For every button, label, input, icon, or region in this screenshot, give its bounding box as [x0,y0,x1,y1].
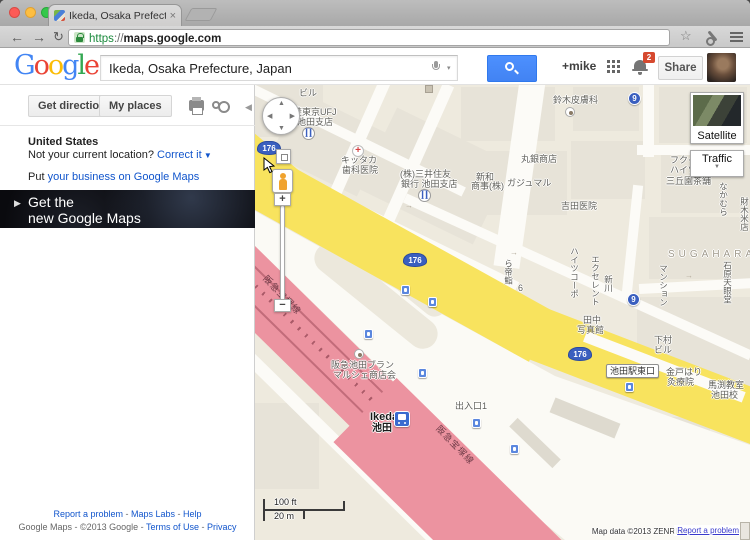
google-logo: Google [14,50,98,81]
map-report-problem-link[interactable]: Report a problem [674,525,742,536]
bus-marker-icon [472,418,481,428]
map-label: 三丘園茶舗 [666,176,711,186]
divider [0,125,255,126]
map-label: マンション [659,264,668,307]
map-label: → [685,271,693,280]
pan-up-icon[interactable]: ▲ [278,100,285,107]
map-label: 石原天眼堂 [723,261,732,304]
location-question: Not your current location? Correct it ▼ [28,149,212,161]
promo-line2: new Google Maps [28,210,141,226]
tab-strip: Ikeda, Osaka Prefecture, Ja × [0,0,750,26]
footer-separator: - [123,509,131,519]
share-button[interactable]: Share [658,56,703,80]
google-header: Google ▾ +mike 2 Share [0,48,750,85]
satellite-label: Satellite [691,130,743,142]
footer-separator: - [175,509,183,519]
train-marker-icon [394,411,410,427]
map-label: ビル [299,88,317,98]
privacy-link[interactable]: Privacy [207,522,237,532]
map-label: ハイツコーポ [570,247,579,298]
map-label: マルシェ商店会 [333,370,396,380]
back-button[interactable]: ← [10,27,24,47]
report-problem-link[interactable]: Report a problem [53,509,123,519]
bus-marker-icon [510,444,519,454]
google-logo-letter: g [62,50,77,81]
bus-marker-icon [418,368,427,378]
zoom-in-button[interactable]: + [274,193,291,206]
traffic-layer-button[interactable]: Traffic ▼ [690,150,744,177]
map-label: なかむら [719,182,728,216]
url-scheme: https [89,33,114,45]
reload-button[interactable]: ↻ [53,27,64,47]
menu-icon[interactable] [730,32,743,42]
map-scale-bar: 100 ft 20 m [263,499,353,525]
tab-close-icon[interactable]: × [170,11,176,21]
scale-meters-label: 20 m [274,511,294,521]
return-to-last-position-button[interactable] [276,149,291,164]
map-canvas[interactable]: ビル菱東京UFJ池田支店キッタカ歯科医院(株)三井住友銀行 池田支店丸銀商店新和… [255,85,750,540]
map-label: 下村 [654,335,672,345]
map-label: 馬渕教室 [708,380,744,390]
window-close-button[interactable] [9,7,20,18]
business-link[interactable]: your business on Google Maps [48,171,200,183]
sidebar-footer: Report a problem - Maps Labs - Help Goog… [0,506,255,532]
tab-title: Ikeda, Osaka Prefecture, Ja [69,10,166,22]
footer-brand: Google Maps [18,522,72,532]
promo-arrow-icon: ▶ [14,198,21,209]
correct-it-caret-icon[interactable]: ▼ [202,151,212,160]
mic-dropdown-caret-icon[interactable]: ▾ [447,64,451,72]
google-logo-letter: G [14,50,34,81]
notification-badge: 2 [643,52,655,63]
promo-line1: Get the [28,194,74,210]
map-road [639,278,750,294]
sidebar-collapse-arrow-icon[interactable]: ◀ [242,96,255,118]
scale-feet-label: 100 ft [274,497,297,507]
circle9-marker-icon: 9 [627,293,640,306]
browser-tab[interactable]: Ikeda, Osaka Prefecture, Ja × [48,4,182,26]
map-label: 写真館 [577,325,604,335]
pan-control[interactable]: ▲ ▼ ◀ ▶ [262,97,300,135]
satellite-layer-button[interactable]: Satellite [690,92,744,144]
google-logo-letter: o [34,50,48,81]
sidebar: Get directions My places ◀ United States… [0,85,255,540]
map-label: 阪急池田ブラン [331,360,394,370]
zoom-out-button[interactable]: − [274,299,291,312]
address-bar[interactable]: https://maps.google.com [68,29,670,46]
search-button[interactable] [487,55,537,82]
footer-separator: - [199,522,207,532]
shield-marker-icon: 176 [403,253,427,267]
map-label: 田中 [583,315,601,325]
map-label: 鈴木皮膚科 [553,95,598,105]
bus-marker-icon [428,297,437,307]
map-label: 金戸はり [666,367,702,377]
map-label: ガジュマル [507,178,551,188]
location-question-text: Not your current location? [28,149,157,161]
pan-left-icon[interactable]: ◀ [267,112,272,120]
map-label: 6 [518,283,523,293]
hospital-marker-icon [352,145,364,157]
bookmark-star-icon[interactable]: ☆ [680,28,692,44]
map-label: 池田校 [711,390,738,400]
terms-link[interactable]: Terms of Use [146,522,199,532]
map-label: 池田 [372,423,392,435]
satellite-thumbnail [693,95,741,126]
map-label: 出入口1 [455,401,487,411]
shield-marker-icon: 176 [568,347,592,361]
microphone-icon[interactable] [432,61,440,72]
current-location-title: United States [28,136,98,148]
business-prefix-text: Put [28,171,48,183]
map-label: 新川 [604,275,613,292]
footer-copyright: ©2013 Google [80,522,138,532]
new-maps-promo-banner[interactable]: ▶ Get the new Google Maps [0,190,255,228]
zoom-slider-track[interactable] [280,205,285,301]
map-label: ビル [654,345,672,355]
maps-labs-link[interactable]: Maps Labs [131,509,175,519]
traffic-caret-icon: ▼ [691,165,743,170]
map-label: → [510,248,518,257]
bus-marker-icon [625,382,634,392]
window-minimize-button[interactable] [25,7,36,18]
pan-down-icon[interactable]: ▼ [278,125,285,132]
footer-separator: - [72,522,80,532]
map-label: ら帝鮨 [504,259,513,285]
map-label: エクセレント [591,255,600,306]
map-label: 池田支店 [297,117,333,127]
correct-it-link[interactable]: Correct it [157,149,202,161]
footer-links-row: Report a problem - Maps Labs - Help [0,509,255,519]
forward-button[interactable]: → [32,27,46,47]
new-tab-button[interactable] [185,8,218,21]
url-separator: :// [114,33,124,45]
bus-marker-icon [401,285,410,295]
google-logo-letter: e [84,50,98,81]
profile-avatar[interactable] [707,53,736,82]
account-link[interactable]: +mike [562,59,596,73]
bank-marker-icon [302,127,315,140]
map-corner-widget[interactable] [740,522,750,540]
map-label: 銀行 池田支店 [401,179,458,189]
link-icon[interactable] [212,101,220,109]
bus-marker-icon [364,329,373,339]
help-link[interactable]: Help [183,509,202,519]
pan-right-icon[interactable]: ▶ [290,112,295,120]
dot-marker-icon [565,107,575,117]
map-label: 財木米店 [740,197,749,231]
google-logo-letter: o [48,50,62,81]
business-line: Put your business on Google Maps [28,171,199,183]
mouse-cursor [263,157,277,174]
browser-toolbar: ← → ↻ https://maps.google.com ☆ [0,26,750,48]
search-input[interactable] [100,55,458,81]
dot-marker-icon [354,349,364,359]
wrench-icon[interactable] [706,30,719,43]
my-places-button[interactable]: My places [99,95,172,117]
map-label: 吉田医院 [561,201,597,211]
url-host: maps.google.com [124,33,222,45]
map-label: (株)三井住友 [400,169,451,179]
https-lock-icon [74,32,85,43]
map-label: 歯科医院 [342,165,378,175]
tab-favicon-icon [54,10,65,21]
map-label: SUGAHARACHO [668,249,750,261]
map-label: → [405,201,413,210]
circle9-marker-icon: 9 [628,92,641,105]
browser-window: Ikeda, Osaka Prefecture, Ja × ← → ↻ http… [0,0,750,540]
apps-grid-icon[interactable] [607,60,610,63]
map-label: 丸銀商店 [521,154,557,164]
print-icon[interactable] [189,100,204,111]
map-label: 池田駅東口 [606,364,659,378]
bank-marker-icon [418,189,431,202]
map-label: 商事(株) [471,181,504,191]
magnifier-icon [505,62,514,71]
tinypoi-marker-icon [425,85,433,93]
footer-separator: - [138,522,146,532]
map-label: 灸療院 [667,377,694,387]
footer-copyright-row: Google Maps - ©2013 Google - Terms of Us… [0,522,255,532]
